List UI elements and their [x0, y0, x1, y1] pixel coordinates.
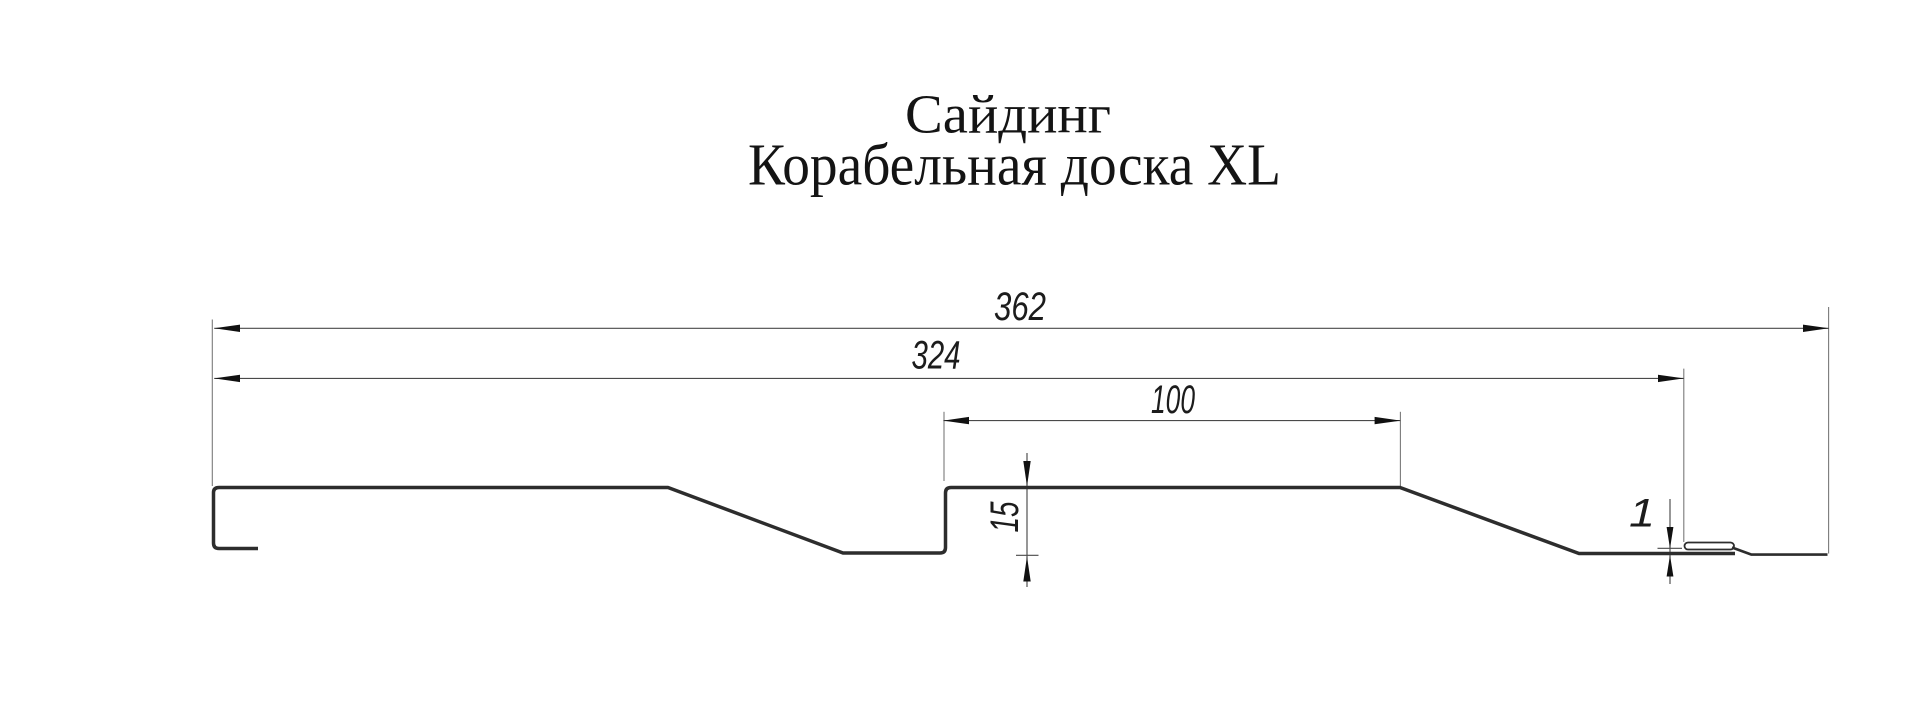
svg-text:100: 100 [1151, 378, 1195, 422]
svg-text:Корабельная доска XL: Корабельная доска XL [748, 132, 1281, 198]
svg-text:1: 1 [1629, 492, 1655, 536]
svg-text:362: 362 [994, 285, 1046, 329]
svg-text:15: 15 [983, 501, 1027, 533]
svg-text:324: 324 [912, 334, 961, 378]
